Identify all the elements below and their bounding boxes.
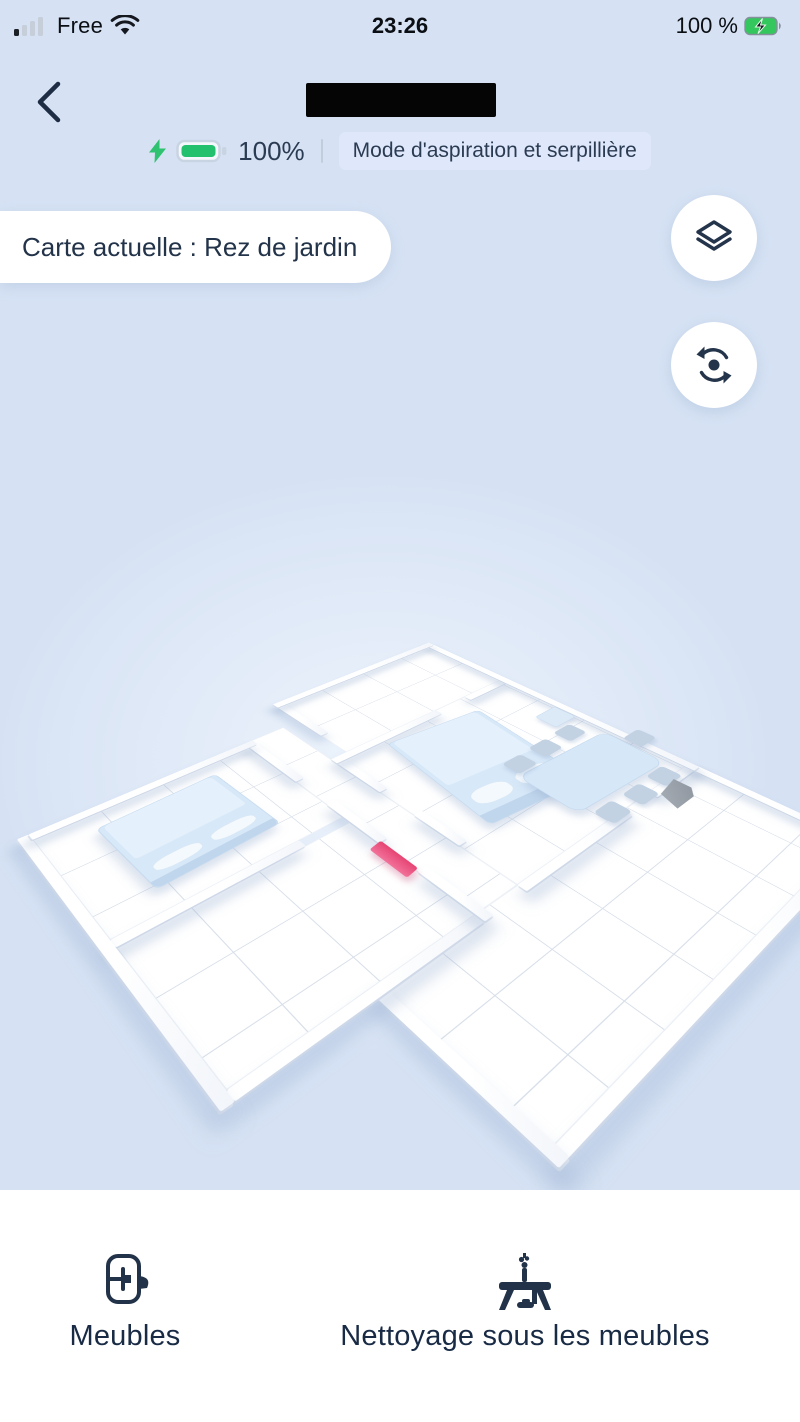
current-map-pill[interactable]: Carte actuelle : Rez de jardin bbox=[0, 211, 391, 283]
status-right: 100 % bbox=[676, 13, 784, 39]
back-button[interactable] bbox=[28, 80, 70, 126]
floor-plan-3d[interactable] bbox=[12, 647, 800, 1190]
rotate-view-icon bbox=[691, 342, 737, 388]
divider bbox=[321, 139, 323, 163]
robot-battery-percent: 100% bbox=[238, 136, 305, 167]
clean-under-furniture-icon bbox=[493, 1248, 557, 1312]
furniture-icon bbox=[93, 1248, 157, 1312]
battery-charging-icon bbox=[744, 16, 784, 36]
charging-bolt-icon bbox=[149, 139, 166, 163]
layers-icon bbox=[692, 216, 736, 260]
battery-percent-label: 100 % bbox=[676, 13, 738, 39]
device-status-row: 100% Mode d'aspiration et serpillière bbox=[0, 128, 800, 174]
redacted-device-name bbox=[306, 83, 496, 117]
map-layers-button[interactable] bbox=[671, 195, 757, 281]
nav-item-nettoyage-sous-meubles[interactable]: Nettoyage sous les meubles bbox=[255, 1248, 795, 1353]
nav-label-nettoyage: Nettoyage sous les meubles bbox=[340, 1320, 710, 1353]
map-rotate-button[interactable] bbox=[671, 322, 757, 408]
status-bar: Free 23:26 100 % bbox=[0, 0, 800, 46]
map-area[interactable]: Carte actuelle : Rez de jardin bbox=[0, 174, 800, 1190]
app-screen: Free 23:26 100 % bbox=[0, 0, 800, 1422]
back-chevron-icon bbox=[34, 80, 64, 124]
robot-battery-icon bbox=[176, 137, 228, 165]
nav-item-meubles[interactable]: Meubles bbox=[35, 1248, 215, 1353]
nav-label-meubles: Meubles bbox=[69, 1320, 180, 1353]
cleaning-mode-badge[interactable]: Mode d'aspiration et serpillière bbox=[339, 132, 651, 170]
bottom-nav: Meubles Nettoyage sous les meubles bbox=[0, 1190, 800, 1422]
